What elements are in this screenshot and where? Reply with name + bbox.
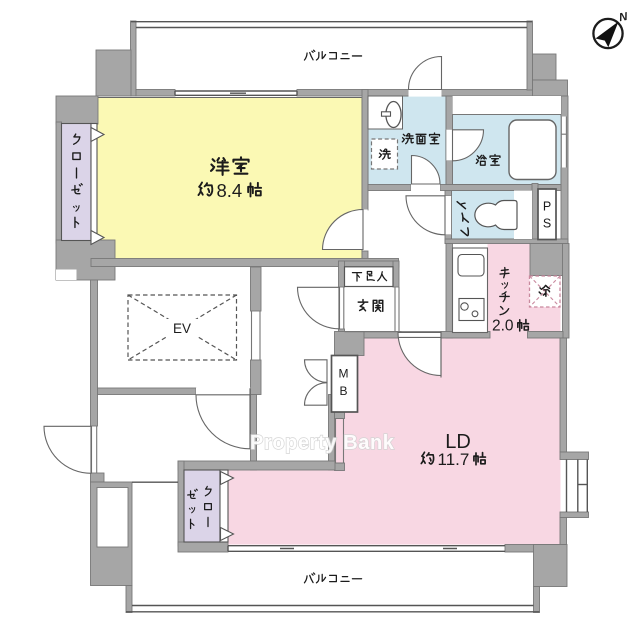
svg-text:M: M [339, 367, 349, 381]
svg-text:2.0: 2.0 [492, 318, 514, 335]
svg-text:S: S [543, 217, 551, 231]
svg-text:P: P [543, 200, 551, 214]
svg-text:EV: EV [173, 321, 191, 336]
svg-text:B: B [339, 384, 347, 398]
svg-text:Property Bank: Property Bank [250, 432, 395, 454]
svg-text:LD: LD [445, 431, 471, 453]
svg-text:8.4: 8.4 [217, 180, 243, 201]
